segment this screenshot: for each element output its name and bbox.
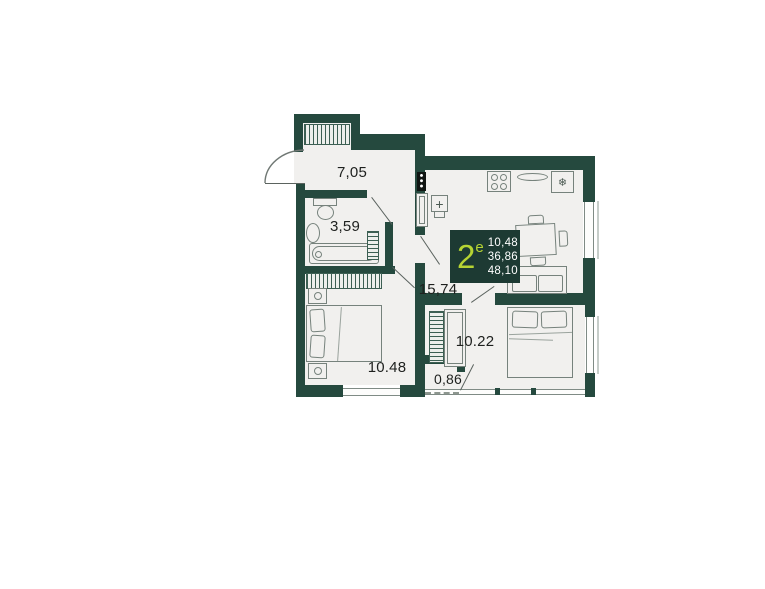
burner-icon <box>491 174 498 181</box>
burner-icon <box>500 183 507 190</box>
wall <box>385 222 393 272</box>
nightstand-icon <box>308 288 327 304</box>
towel-radiator-icon <box>367 231 379 260</box>
chair-icon <box>558 230 568 246</box>
bathtub-drain-icon <box>315 251 322 258</box>
pillow-icon <box>309 309 326 333</box>
room-area-label-hallway: 7,05 <box>322 164 382 181</box>
lamp-icon <box>314 367 322 375</box>
window-sill <box>597 201 599 259</box>
coat-rack-icon <box>304 124 350 145</box>
pillow-icon <box>512 311 539 329</box>
room-area-label-bedroom-1: 10.48 <box>355 359 419 376</box>
badge-area-value: 48,10 <box>488 264 518 278</box>
wardrobe-icon <box>429 311 444 363</box>
dining-table-icon <box>515 223 557 257</box>
kitchen-cabinet-icon <box>416 193 428 227</box>
kitchen-hood-icon <box>517 173 548 181</box>
unit-type-badge: 2 е 10,48 36,86 48,10 <box>450 230 520 283</box>
wall <box>417 156 595 170</box>
room-area-label-bathroom: 3,59 <box>315 218 375 235</box>
glazing-post <box>531 388 536 395</box>
sofa-cushion-icon <box>538 275 563 292</box>
badge-area-value: 36,86 <box>488 250 518 264</box>
sink-cross-glyph: + <box>435 196 443 212</box>
double-bed-icon <box>306 305 382 362</box>
badge-area-value: 10,48 <box>488 236 518 250</box>
wall <box>294 114 303 152</box>
wall <box>495 293 595 305</box>
burner-icon <box>500 174 507 181</box>
room-area-label-kitchen-living: 15,74 <box>414 281 462 298</box>
wall <box>351 134 425 150</box>
blanket-line <box>337 307 342 361</box>
pillow-icon <box>309 335 326 359</box>
entrance-door-arc-icon <box>264 149 305 184</box>
kitchen-sink-icon: + <box>431 195 448 212</box>
chair-icon <box>530 257 546 267</box>
entrance-door-leaf-icon <box>265 183 305 184</box>
window <box>586 317 594 373</box>
floorplan-page: { "plan": { "badge": { "type_number": "2… <box>0 0 765 589</box>
unit-type-number: 2 <box>457 240 475 273</box>
unit-type-suffix: е <box>475 239 483 256</box>
fridge-icon: ❄ <box>551 171 574 193</box>
utility-panel-icon <box>417 172 426 191</box>
nightstand-icon <box>308 363 327 379</box>
snowflake-glyph: ❄ <box>558 176 567 189</box>
room-floor <box>462 293 495 305</box>
floor-plan: + ❄ <box>0 0 765 589</box>
glazing-post <box>495 388 500 395</box>
wall <box>303 190 367 198</box>
window <box>584 202 594 258</box>
wardrobe-icon <box>306 273 382 289</box>
lamp-icon <box>314 292 322 300</box>
stove-icon <box>487 171 511 192</box>
double-bed-icon <box>507 307 573 378</box>
window <box>343 388 400 396</box>
kitchen-sink-base-icon <box>434 211 445 218</box>
badge-area-values: 10,48 36,86 48,10 <box>488 236 518 278</box>
wall <box>585 305 595 317</box>
balcony-dashed-line <box>425 391 459 394</box>
wall <box>400 385 423 397</box>
pillow-icon <box>541 311 568 329</box>
window-sill <box>597 316 599 374</box>
wall <box>296 385 343 397</box>
wall <box>296 184 305 397</box>
wall <box>583 170 595 202</box>
room-area-label-bedroom-2: 10.22 <box>445 333 505 350</box>
burner-icon <box>491 183 498 190</box>
blanket-line <box>509 332 572 335</box>
wall <box>583 258 595 305</box>
blanket-line <box>509 338 553 341</box>
wall <box>585 373 595 397</box>
room-area-label-closet: 0,86 <box>426 371 470 387</box>
